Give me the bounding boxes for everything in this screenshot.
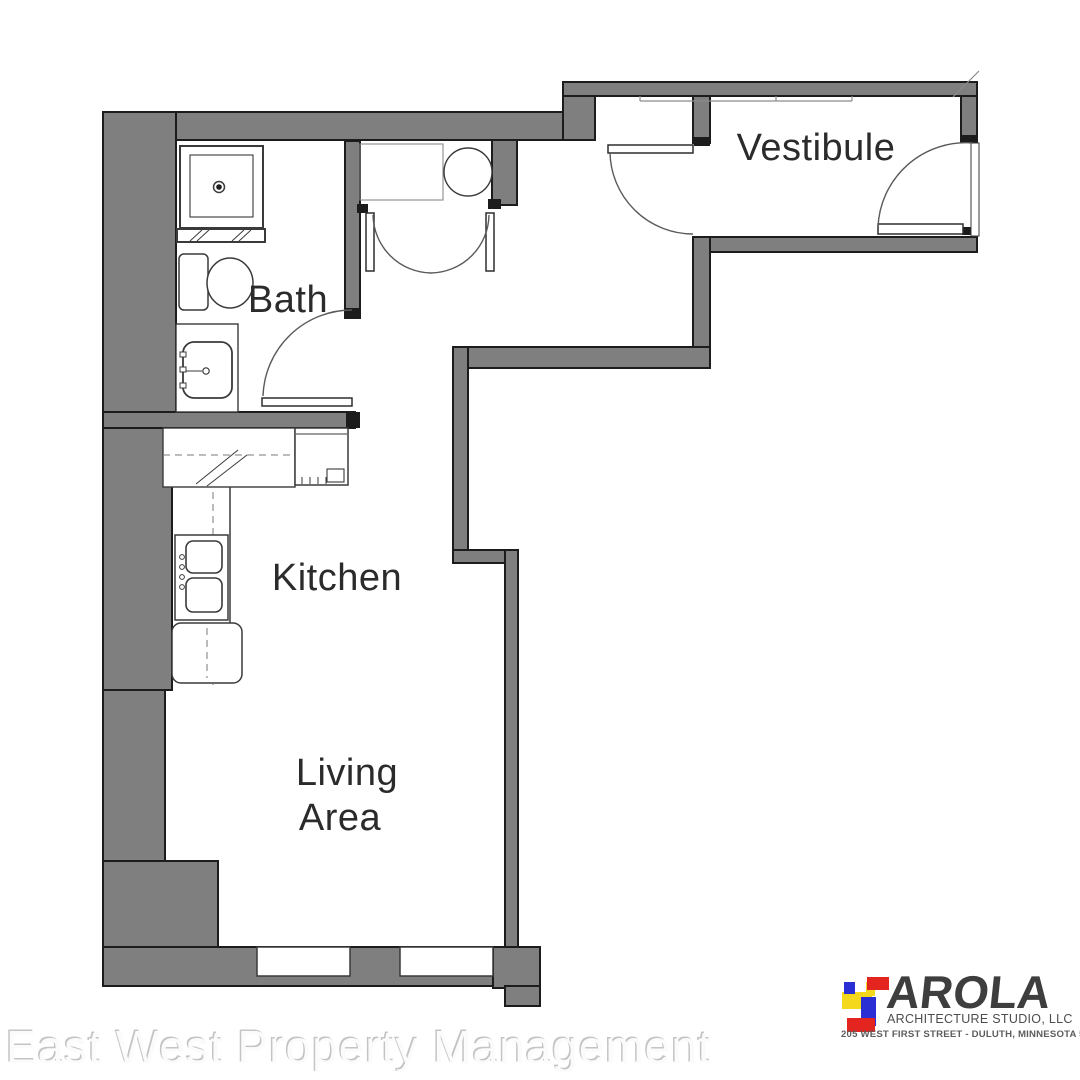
window-opening-1	[257, 947, 350, 976]
closet-door-arc-right	[431, 215, 489, 273]
wall-bath-south	[103, 412, 355, 428]
faucet	[203, 368, 209, 374]
jamb-closet-right	[488, 199, 501, 209]
closet-door-leaf-right	[486, 213, 494, 271]
faucet-handles	[180, 352, 186, 388]
jamb-vestibule-right-stub	[961, 135, 977, 143]
logo-square-blue-small	[844, 982, 855, 994]
logo-firm-address: 205 WEST FIRST STREET - DULUTH, MINNESOT…	[841, 1029, 1080, 1040]
kitchen-sink-basin-2	[186, 578, 222, 612]
kitchen-label: Kitchen	[272, 557, 402, 599]
wall-left-living-upper	[103, 690, 165, 861]
shower-curb	[177, 229, 265, 242]
bath-label: Bath	[248, 279, 328, 321]
jamb-vestibule-left-stub	[694, 137, 710, 146]
wall-living-east	[505, 550, 518, 947]
entry-door-leaf	[878, 224, 963, 234]
arola-logo-icon	[842, 976, 890, 1034]
living-area-label-line1: Living	[296, 752, 398, 794]
jamb-bath-wall-end	[346, 412, 360, 428]
wall-closet-east	[492, 140, 517, 205]
door-jambs	[346, 135, 977, 428]
jamb-closet-left	[357, 204, 368, 213]
logo-square-red-top	[867, 977, 889, 990]
window-opening-2	[400, 947, 493, 976]
entry-door-threshold	[971, 143, 979, 236]
toilet-tank	[179, 254, 208, 310]
bath-door-leaf	[262, 398, 352, 406]
closet-shelf	[360, 144, 443, 200]
kitchen-sink-basin-1	[186, 541, 222, 573]
closet-fixtures	[360, 144, 492, 200]
logo-firm-name: AROLA	[884, 965, 1053, 1019]
water-heater	[444, 148, 492, 196]
wall-left-bath	[103, 112, 176, 412]
wall-corner-block	[493, 947, 540, 988]
architect-logo: AROLA ARCHITECTURE STUDIO, LLC 205 WEST …	[840, 972, 1050, 1050]
bath-door-arc	[263, 310, 352, 396]
wall-vestibule-top	[563, 82, 977, 96]
watermark-text: East West Property Management	[6, 1020, 712, 1074]
toilet-bowl	[207, 258, 253, 308]
closet-door-arc-left	[373, 215, 431, 273]
wall-corner-tab	[505, 986, 540, 1006]
floor-plan-canvas: Bath Kitchen Living Area Vestibule	[0, 0, 1080, 1080]
wall-left-living-lower	[103, 861, 218, 947]
vestibule-label: Vestibule	[737, 127, 896, 169]
shower-drain	[216, 184, 222, 190]
logo-firm-subtitle: ARCHITECTURE STUDIO, LLC	[887, 1012, 1073, 1026]
vestibule-hall-door-leaf	[608, 145, 693, 153]
wall-corridor-south	[453, 347, 710, 368]
living-area-label-line2: Area	[299, 797, 382, 839]
vestibule-hall-door-arc	[610, 152, 693, 234]
wall-left-kitchen	[103, 428, 172, 690]
wall-vestibule-bottom	[710, 237, 977, 252]
wall-bath-east	[345, 141, 360, 318]
wall-vestibule-left-stub	[693, 96, 710, 143]
stove	[295, 428, 348, 485]
wall-mid-east	[453, 347, 468, 563]
floor-plan-page: Bath Kitchen Living Area Vestibule East …	[0, 0, 1080, 1080]
